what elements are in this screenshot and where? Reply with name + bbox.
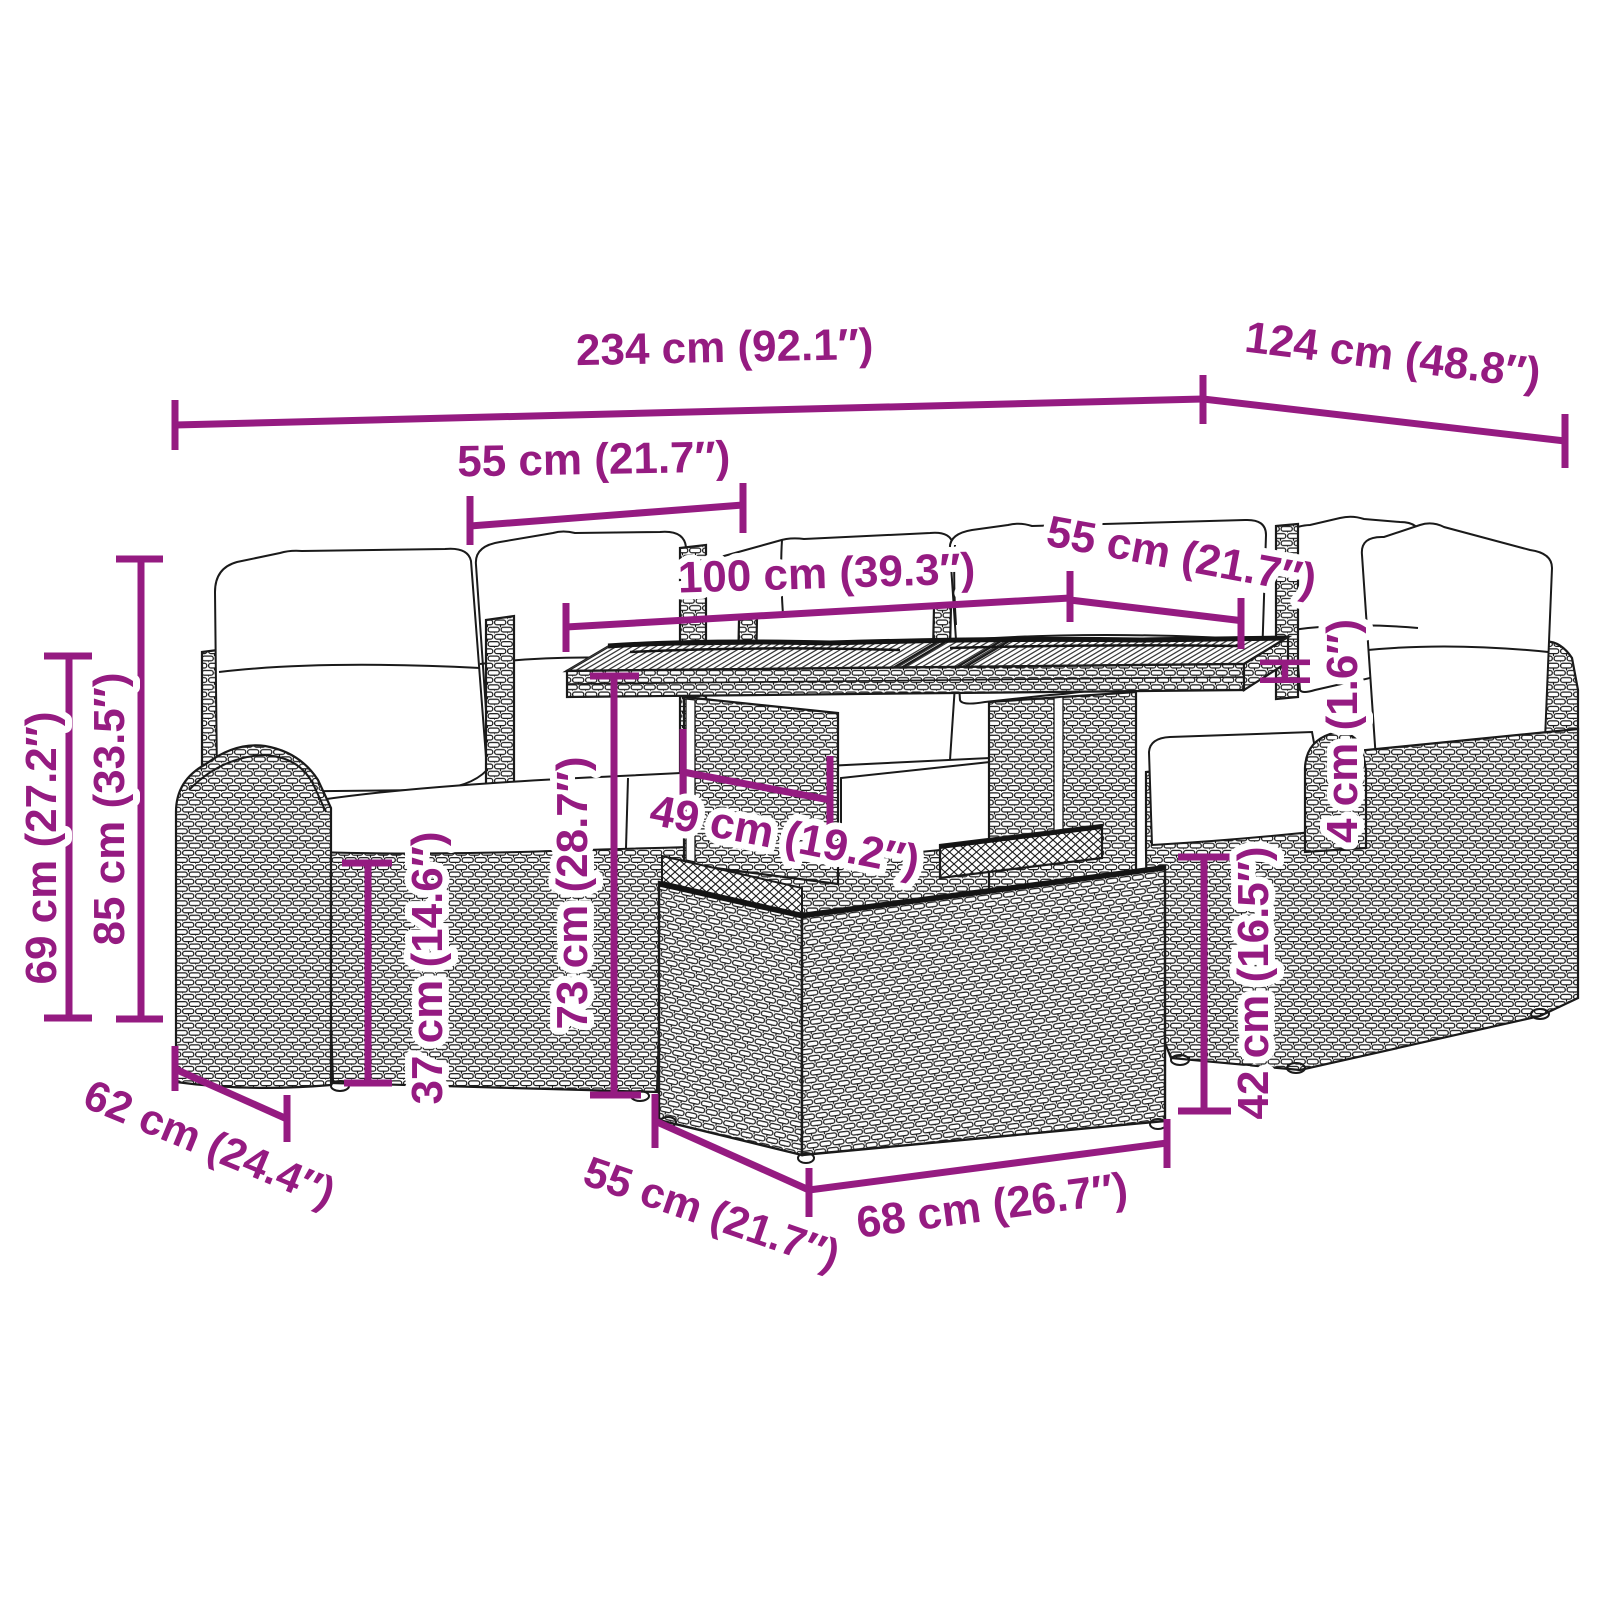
svg-text:42 cm (16.5″): 42 cm (16.5″): [1229, 846, 1278, 1119]
svg-text:234 cm (92.1″): 234 cm (92.1″): [575, 320, 873, 375]
svg-text:69 cm (27.2″): 69 cm (27.2″): [17, 711, 66, 984]
svg-text:55 cm (21.7″): 55 cm (21.7″): [457, 433, 731, 487]
svg-text:4 cm (1.6″): 4 cm (1.6″): [1318, 619, 1367, 843]
svg-text:73 cm (28.7″): 73 cm (28.7″): [548, 756, 597, 1029]
svg-text:85 cm (33.5″): 85 cm (33.5″): [85, 672, 134, 945]
svg-text:37 cm (14.6″): 37 cm (14.6″): [403, 831, 452, 1104]
svg-text:100 cm (39.3″): 100 cm (39.3″): [677, 544, 976, 602]
